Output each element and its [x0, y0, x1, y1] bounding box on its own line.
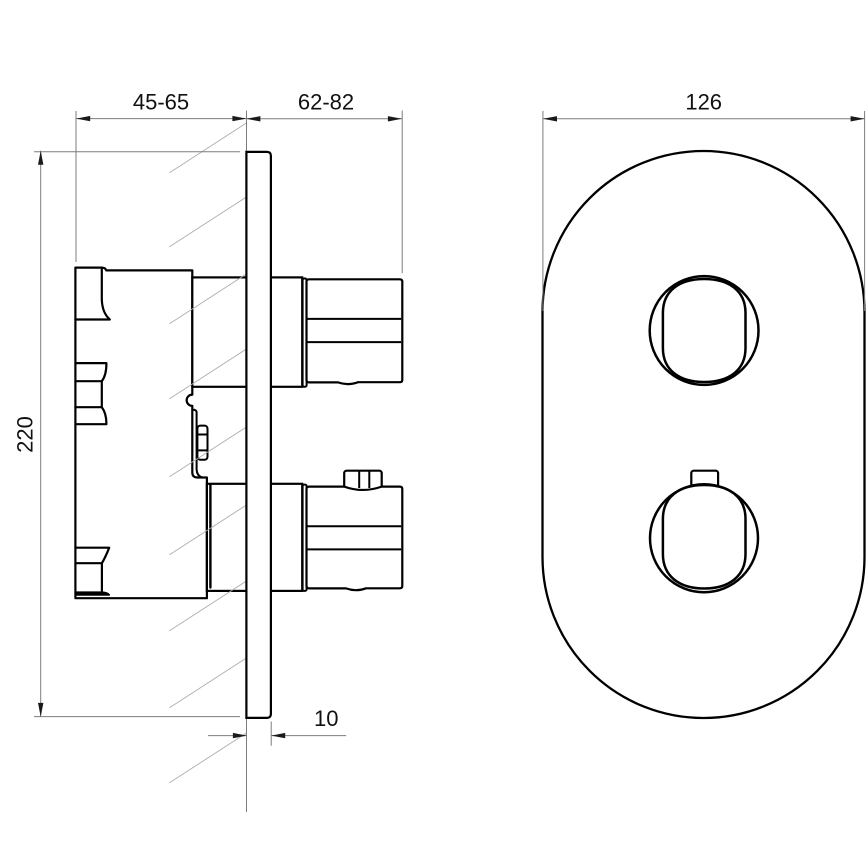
svg-text:10: 10 — [314, 706, 338, 731]
svg-text:62-82: 62-82 — [298, 90, 354, 115]
svg-text:220: 220 — [13, 416, 38, 453]
svg-text:45-65: 45-65 — [133, 90, 189, 115]
svg-text:126: 126 — [685, 90, 722, 115]
